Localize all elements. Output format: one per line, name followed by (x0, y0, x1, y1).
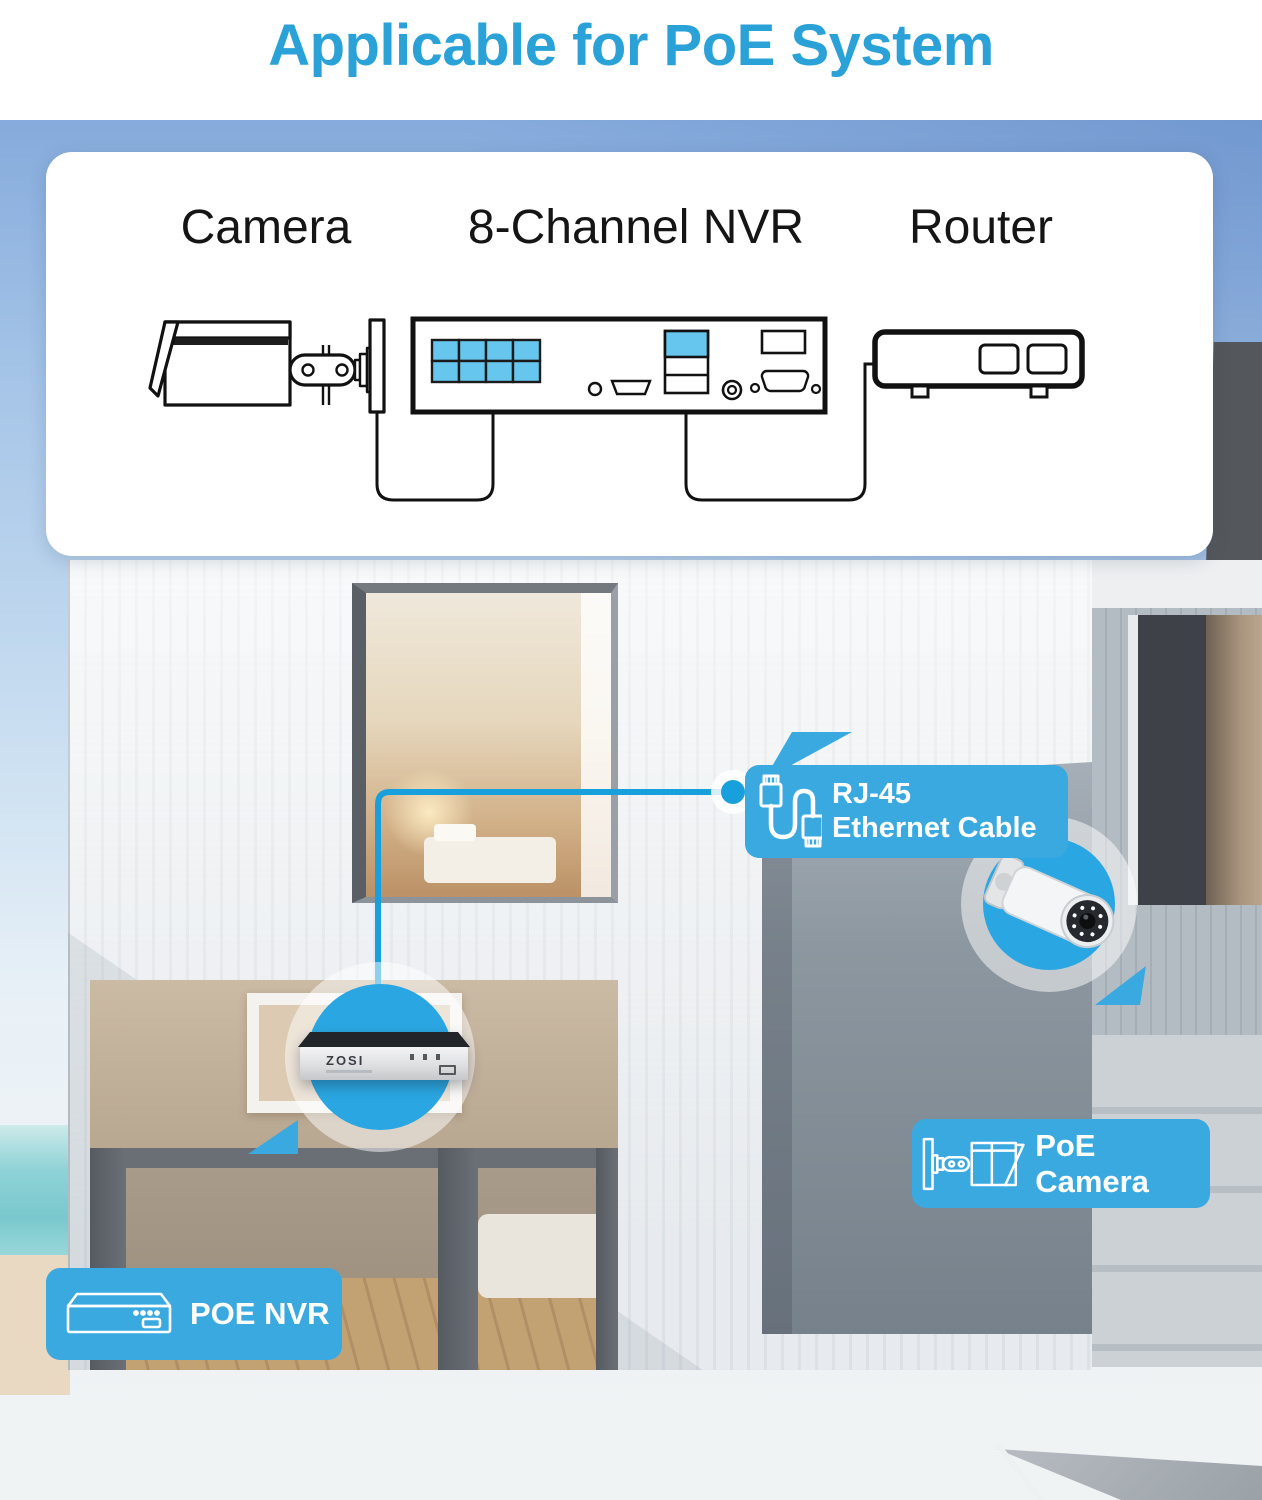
rj45-line1: RJ-45 (832, 778, 1037, 811)
poe-nvr-callout: POE NVR (46, 1268, 342, 1360)
connection-diagram (46, 152, 1213, 556)
page-title: Applicable for PoE System (0, 12, 1262, 79)
nvr-top-face (298, 1032, 470, 1047)
camera-drawing (150, 320, 384, 412)
nvr-drawing (413, 319, 825, 412)
router-drawing (875, 332, 1082, 397)
nvr-usb-port (439, 1065, 456, 1075)
title-band: Applicable for PoE System (0, 0, 1262, 120)
nvr-product-photo: ZOSI (298, 1032, 470, 1082)
nvr-box-icon (64, 1292, 174, 1336)
rj45-line2: Ethernet Cable (832, 812, 1037, 845)
rj45-callout-text: RJ-45 Ethernet Cable (832, 778, 1037, 844)
poe-system-marketing-image: Applicable for PoE System (0, 0, 1262, 1500)
nvr-model-text (326, 1070, 372, 1073)
nvr-status-leds (410, 1054, 440, 1060)
bullet-camera-icon (922, 1136, 1029, 1192)
poe-nvr-label: POE NVR (190, 1296, 330, 1331)
connection-diagram-card: Camera 8-Channel NVR Router (46, 152, 1213, 556)
nvr-front-face: ZOSI (300, 1047, 468, 1080)
poe-nvr-callout-tail (248, 1120, 298, 1154)
poe-camera-label: PoE Camera (1035, 1128, 1210, 1199)
ethernet-cable-icon (758, 772, 822, 852)
rj45-callout: RJ-45 Ethernet Cable (745, 765, 1068, 858)
nvr-brand-logo: ZOSI (326, 1053, 364, 1068)
poe-camera-callout: PoE Camera (912, 1119, 1210, 1208)
cable-node-dot (721, 780, 745, 804)
cable-camera-nvr (377, 412, 493, 500)
